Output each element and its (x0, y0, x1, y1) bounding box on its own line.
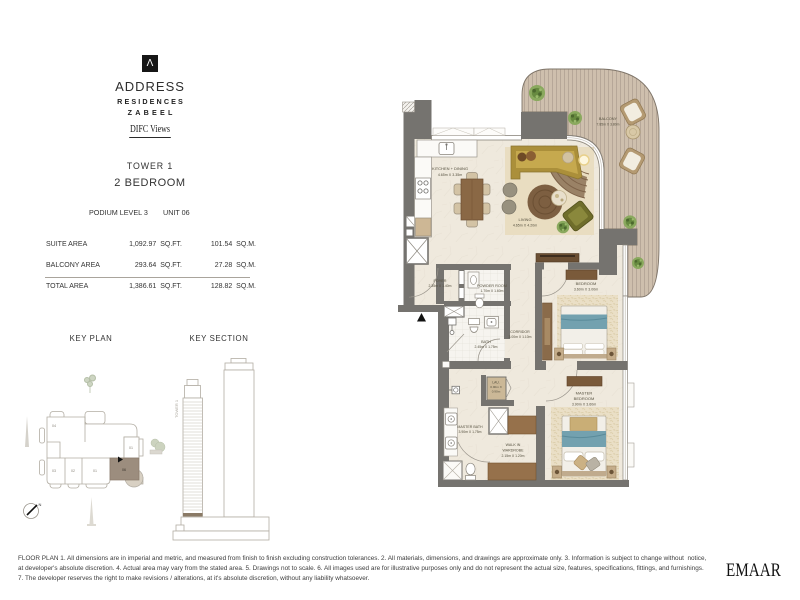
svg-text:01: 01 (93, 469, 97, 473)
svg-text:4.65m X 3.35m: 4.65m X 3.35m (438, 173, 462, 177)
svg-text:WALK IN: WALK IN (506, 443, 521, 447)
svg-text:KITCHEN + DINING: KITCHEN + DINING (432, 166, 468, 171)
svg-text:02: 02 (71, 469, 75, 473)
svg-text:3.00m X 1.10m: 3.00m X 1.10m (509, 335, 532, 339)
svg-text:BATH: BATH (481, 340, 491, 344)
svg-text:03: 03 (52, 469, 56, 473)
svg-text:BEDROOM: BEDROOM (576, 281, 597, 286)
svg-text:3.60m X 3.00m: 3.60m X 3.00m (574, 288, 598, 292)
svg-text:LIVING: LIVING (518, 217, 531, 222)
svg-text:06: 06 (122, 468, 126, 472)
svg-text:MASTER BATH: MASTER BATH (457, 425, 483, 429)
svg-text:2.15m X 1.20m: 2.15m X 1.20m (502, 454, 525, 458)
svg-text:TOWER 1: TOWER 1 (174, 399, 179, 418)
svg-text:01: 01 (129, 446, 133, 450)
svg-text:CORRIDOR: CORRIDOR (510, 330, 530, 334)
svg-text:LAU.: LAU. (492, 381, 499, 385)
svg-text:0.90m X: 0.90m X (490, 385, 502, 389)
svg-text:3.90m X 1.75m: 3.90m X 1.75m (459, 430, 482, 434)
svg-text:BALCONY: BALCONY (599, 117, 618, 121)
svg-text:2.45m X 1.75m: 2.45m X 1.75m (475, 345, 498, 349)
svg-text:WARDROBE: WARDROBE (502, 449, 524, 453)
svg-text:BEDROOM: BEDROOM (574, 396, 595, 401)
svg-text:1.70m X 1.60m: 1.70m X 1.60m (481, 289, 504, 293)
svg-text:POWDER ROOM: POWDER ROOM (477, 284, 507, 288)
svg-text:0.90m: 0.90m (492, 390, 501, 394)
svg-text:2.35m X 1.40m: 2.35m X 1.40m (429, 284, 452, 288)
svg-text:3.90m X 3.60m: 3.90m X 3.60m (572, 403, 596, 407)
svg-text:MASTER: MASTER (576, 391, 593, 396)
svg-text:7.85m X 3.80m: 7.85m X 3.80m (597, 123, 620, 127)
svg-text:4.65m X 4.20m: 4.65m X 4.20m (513, 224, 537, 228)
svg-text:N: N (39, 502, 42, 507)
svg-text:04: 04 (52, 424, 56, 428)
svg-text:FOYER: FOYER (433, 279, 446, 283)
